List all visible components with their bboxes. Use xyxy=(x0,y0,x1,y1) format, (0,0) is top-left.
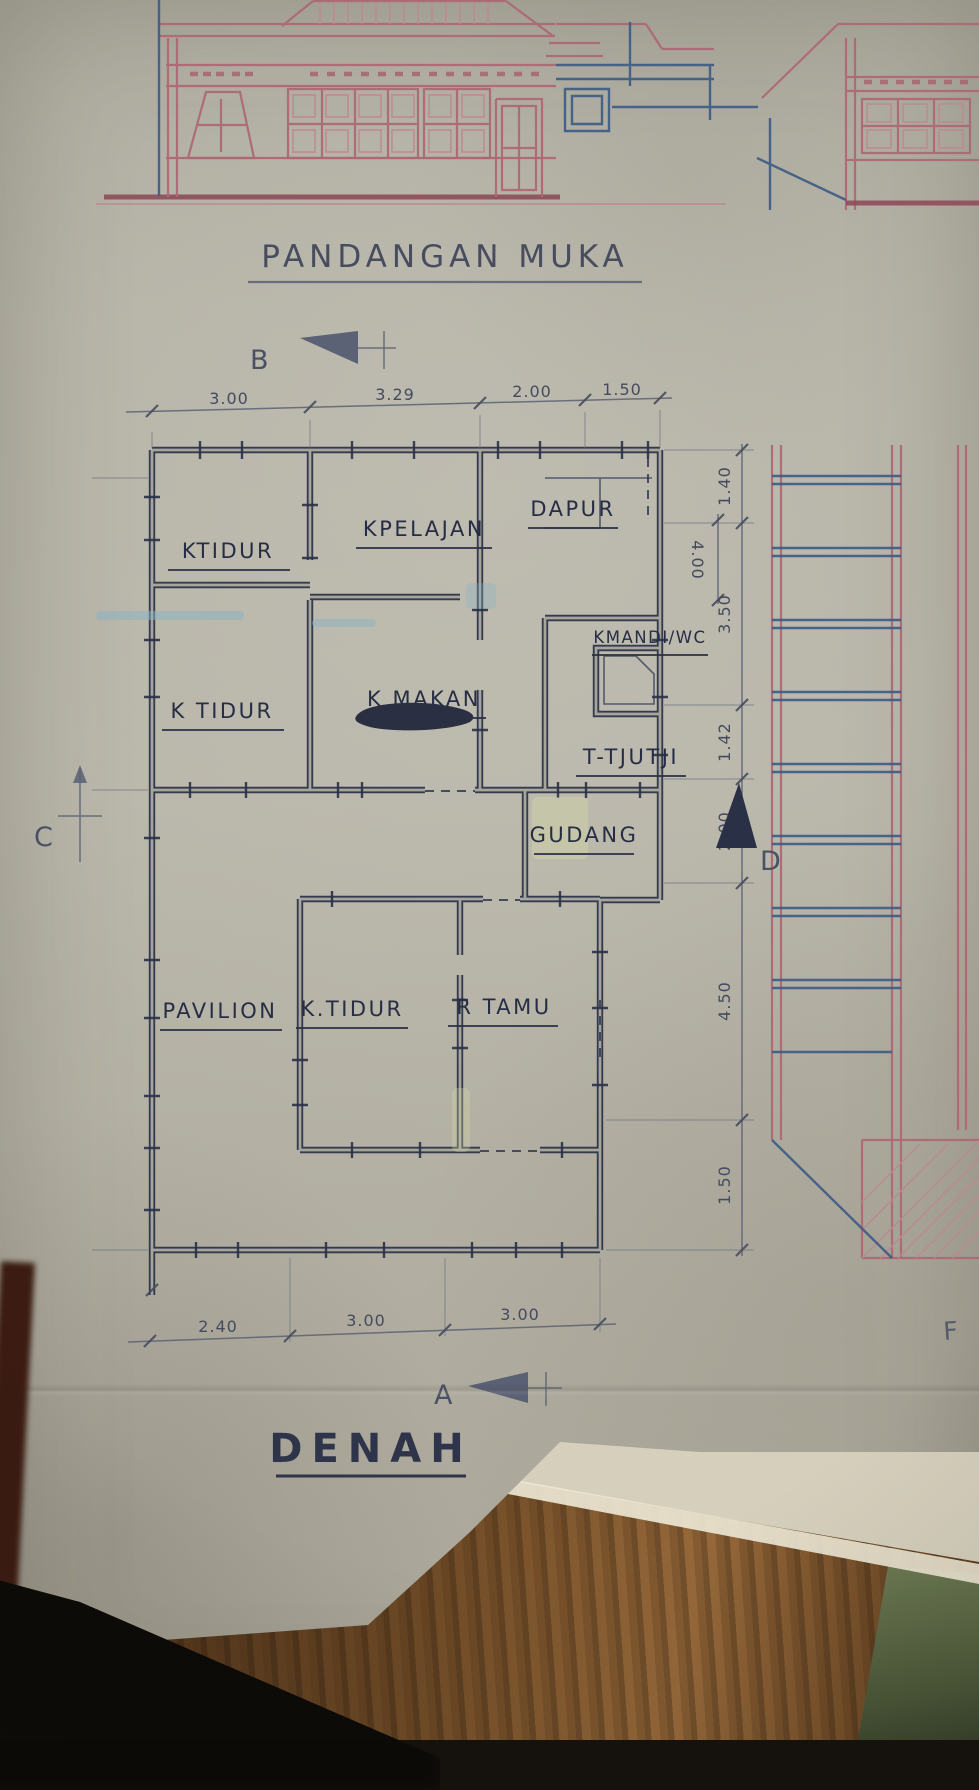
dim-right-2: 3.50 xyxy=(715,594,734,634)
room-label-gudang: GUDANG xyxy=(530,823,639,847)
blue-crayon-smear xyxy=(96,611,244,620)
photo-of-blueprint: PANDANGAN MUKA KTIDUR KPELAJAN DAPUR xyxy=(0,0,979,1740)
room-labels: KTIDUR KPELAJAN DAPUR K TIDUR K MAKAN KM… xyxy=(160,497,708,1030)
elevation-title: PANDANGAN MUKA xyxy=(261,239,629,275)
plan-title-group: DENAH xyxy=(269,1426,472,1476)
room-label-dapur: DAPUR xyxy=(530,497,615,521)
room-label-ktidur-3: K.TIDUR xyxy=(300,997,403,1021)
section-marker-d: D xyxy=(760,846,781,877)
gable-hatching xyxy=(320,3,488,24)
dim-right-6: 1.50 xyxy=(715,1165,734,1205)
paper-crease xyxy=(0,1384,979,1396)
section-fragment xyxy=(772,445,979,1258)
room-label-ttjutji: T-TJUTJI xyxy=(582,745,679,769)
section-marker-b: B xyxy=(250,345,269,376)
dim-bottom-1: 2.40 xyxy=(198,1317,238,1336)
room-label-pavilion: PAVILION xyxy=(162,999,277,1023)
side-elevation-fragment xyxy=(757,24,979,210)
room-label-ktidur-2: K TIDUR xyxy=(170,699,273,723)
room-label-kmakan: K MAKAN xyxy=(367,687,481,711)
room-label-kpelajan: KPELAJAN xyxy=(363,517,485,541)
room-label-kmandi-wc: KMANDI/WC xyxy=(593,628,706,647)
dim-right-1: 1.40 xyxy=(715,466,734,506)
window-band-a xyxy=(288,89,418,158)
front-elevation-drawing xyxy=(96,0,758,204)
stair-hatching xyxy=(862,1141,979,1258)
window-band-b xyxy=(424,89,490,158)
room-label-rtamu: R TAMU xyxy=(456,995,551,1019)
gable-window xyxy=(188,92,254,158)
room-label-underlines xyxy=(160,528,708,1030)
dim-bottom-3: 3.00 xyxy=(500,1305,540,1324)
marks-and-smears xyxy=(96,583,588,1152)
dim-top-1: 3.00 xyxy=(209,389,249,408)
dim-top-4: 1.50 xyxy=(602,380,642,399)
dim-bottom-2: 3.00 xyxy=(346,1311,386,1330)
bath-basin xyxy=(604,656,654,704)
room-label-ktidur-1: KTIDUR xyxy=(182,539,274,563)
annotation-letter-f: F xyxy=(942,1316,958,1346)
elevation-title-group: PANDANGAN MUKA xyxy=(248,239,642,282)
blue-window xyxy=(565,89,609,131)
window-ticks xyxy=(144,441,668,1258)
section-arrow-c-icon xyxy=(73,765,87,783)
dim-top-2: 3.29 xyxy=(375,385,415,404)
dim-top-3: 2.00 xyxy=(512,382,552,401)
blue-crayon-smear xyxy=(466,583,496,609)
drawing-linework: PANDANGAN MUKA KTIDUR KPELAJAN DAPUR xyxy=(0,0,979,1740)
yellow-highlight xyxy=(452,1088,470,1152)
blue-crayon-smear xyxy=(312,619,376,627)
section-marker-c: C xyxy=(34,822,53,853)
front-door xyxy=(496,99,542,197)
blue-accent-lines xyxy=(159,0,758,196)
dim-inner-vertical: 4.00 xyxy=(688,540,707,580)
dim-right-5: 4.50 xyxy=(715,981,734,1021)
plan-title: DENAH xyxy=(269,1426,472,1472)
dim-right-3: 1.42 xyxy=(715,722,734,762)
section-arrow-b-icon xyxy=(300,331,358,364)
